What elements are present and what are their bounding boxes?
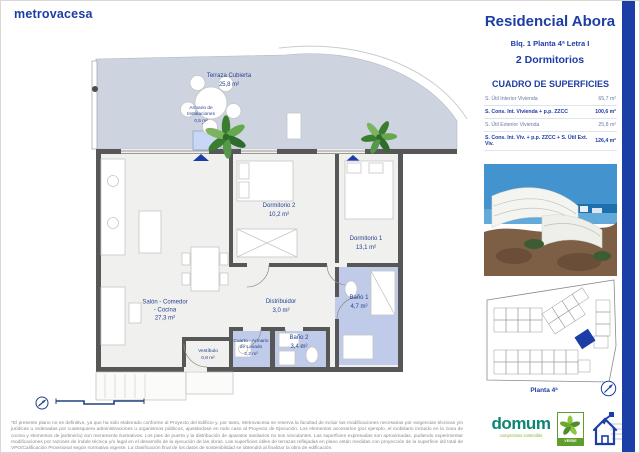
table-row: S. Útil Interior Vivienda 65,7 m² [484,93,617,106]
room-label-salon: Salón - Comedor - Cocina 27,3 m² [141,299,189,323]
metrovacesa-logo: metrovacesa [14,7,93,21]
room-label-dormitorio-1: Dormitorio 1 13,1 m² [350,236,383,252]
room-label-cuarto-lavado: Cuarto - Armario de Lavado 2,2 m² [233,339,269,357]
room-label-bano-1: Baño 1 4,7 m² [349,295,368,311]
table-row: S. Cons. Int. Viv. + p.p. ZZCC + S. Útil… [484,132,617,151]
bedrooms-count: 2 Dormitorios [481,54,619,66]
room-label-armario-instalaciones: Armario de Instalaciones 0,5 m² [179,106,223,124]
floor-plan: Terraza Cubierta 25,8 m² Armario de Inst… [29,41,479,406]
building-render-photo [484,164,617,276]
site-plan [484,278,619,384]
verde-certification-logo: VERDE [557,412,584,446]
room-label-distribuidor: Distribuidor 3,0 m² [266,299,296,315]
project-title: Residencial Abora [481,13,619,30]
brochure-page: metrovacesa [0,0,640,453]
surfaces-table: CUADRO DE SUPERFICIES S. Útil Interior V… [484,79,617,151]
legal-disclaimer: *El presente plano no es definitivo, ya … [11,421,463,453]
compass-icon [600,380,617,402]
surfaces-table-title: CUADRO DE SUPERFICIES [484,79,617,89]
room-label-dormitorio-2: Dormitorio 2 10,2 m² [263,203,296,219]
info-panel: Residencial Abora Blq. 1 Planta 4ª Letra… [481,1,619,66]
scale-bar [34,395,146,416]
energy-house-icon [589,408,623,453]
unit-identifier: Blq. 1 Planta 4ª Letra I [481,39,619,48]
accent-bar [622,1,635,453]
room-label-bano-2: Baño 2 3,4 m² [289,335,308,351]
site-plan-caption: Planta 4ª [484,387,604,394]
table-row: S. Cons. Int. Vivienda + p.p. ZZCC 100,6… [484,106,617,119]
room-label-vestibulo: Vestíbulo 0,8 m² [198,349,218,362]
room-label-terraza: Terraza Cubierta 25,8 m² [207,73,251,89]
table-row: S. Útil Exterior Vivienda 25,8 m² [484,119,617,132]
domum-logo: domum compromiso sostenible [488,415,554,438]
